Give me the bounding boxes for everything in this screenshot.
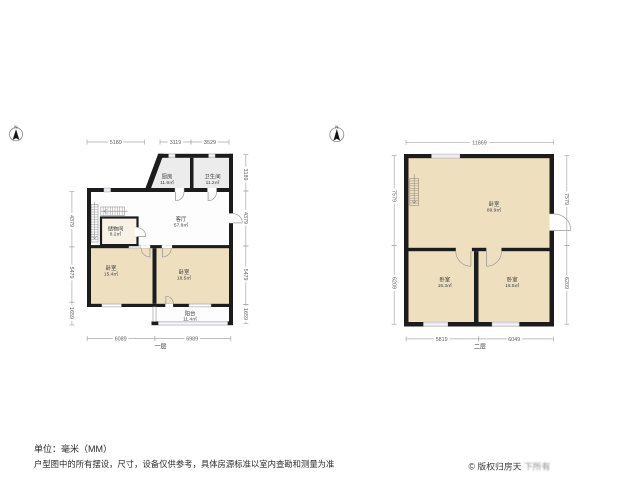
svg-text:11.4㎡: 11.4㎡: [183, 316, 197, 323]
svg-text:3119: 3119: [170, 140, 182, 146]
svg-text:16.5㎡: 16.5㎡: [505, 282, 519, 289]
svg-text:卫生间: 卫生间: [204, 173, 220, 181]
svg-text:89.9㎡: 89.9㎡: [487, 206, 501, 213]
svg-text:6049: 6049: [508, 337, 520, 343]
svg-text:6089: 6089: [115, 337, 127, 343]
svg-text:1659: 1659: [68, 307, 74, 319]
svg-text:© 版权归房天: © 版权归房天: [469, 460, 522, 471]
svg-text:3529: 3529: [204, 140, 216, 146]
svg-text:6209: 6209: [563, 277, 569, 289]
svg-text:4379: 4379: [242, 212, 248, 224]
svg-text:4379: 4379: [68, 215, 74, 227]
svg-text:一层: 一层: [154, 344, 166, 351]
svg-text:15.4㎡: 15.4㎡: [104, 271, 118, 278]
svg-text:8.2㎡: 8.2㎡: [110, 231, 122, 238]
svg-text:1659: 1659: [242, 308, 248, 320]
svg-text:卧室: 卧室: [489, 200, 500, 208]
svg-text:11869: 11869: [472, 140, 487, 146]
svg-text:N: N: [14, 125, 17, 130]
svg-text:5819: 5819: [436, 337, 448, 343]
svg-text:户型图中的所有摆设，尺寸，设备仅供参考，具体房源标准以室内查: 户型图中的所有摆设，尺寸，设备仅供参考，具体房源标准以室内查勘和测量为准: [34, 459, 334, 469]
svg-text:18.5㎡: 18.5㎡: [177, 274, 191, 281]
svg-text:5479: 5479: [242, 269, 248, 281]
svg-text:二层: 二层: [474, 344, 486, 351]
svg-text:5479: 5479: [68, 267, 74, 279]
svg-text:卧室: 卧室: [507, 276, 518, 284]
svg-text:卧室: 卧室: [439, 276, 450, 284]
svg-text:15.3㎡: 15.3㎡: [438, 282, 452, 289]
svg-text:11.9㎡: 11.9㎡: [160, 179, 174, 186]
svg-text:下所有: 下所有: [524, 460, 551, 471]
svg-text:11.2㎡: 11.2㎡: [206, 179, 220, 186]
svg-text:厨房: 厨房: [162, 173, 173, 181]
svg-text:单位：毫米（MM）: 单位：毫米（MM）: [34, 443, 112, 454]
svg-text:N: N: [335, 124, 338, 129]
svg-text:卧室: 卧室: [179, 268, 190, 276]
svg-text:卧室: 卧室: [106, 264, 117, 272]
svg-text:3189: 3189: [242, 169, 248, 181]
svg-text:7579: 7579: [390, 190, 396, 202]
svg-text:7579: 7579: [563, 193, 569, 205]
svg-text:储物间: 储物间: [108, 224, 124, 232]
svg-text:6209: 6209: [390, 277, 396, 289]
svg-text:阳台: 阳台: [185, 310, 196, 318]
svg-text:57.8㎡: 57.8㎡: [174, 221, 188, 228]
svg-text:客厅: 客厅: [176, 215, 187, 223]
svg-text:6989: 6989: [186, 337, 198, 343]
svg-text:5189: 5189: [110, 140, 122, 146]
